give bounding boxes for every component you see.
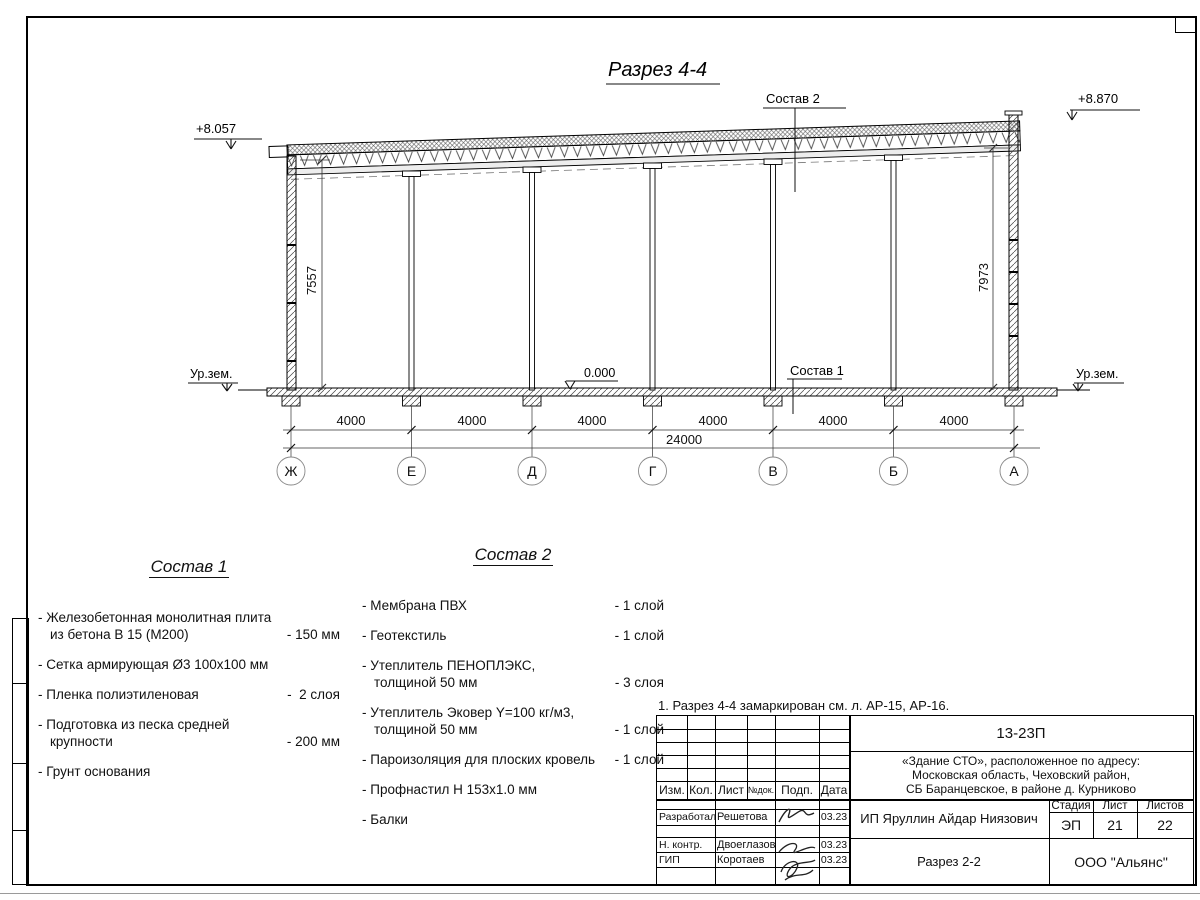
right-parapet-cap — [1005, 111, 1022, 115]
project-code: 13-23П — [849, 716, 1193, 751]
signature-icon — [775, 838, 821, 884]
row-role: ГИП — [659, 852, 715, 867]
axis-label: Е — [407, 463, 416, 479]
item-name: - Пароизоляция для плоских кровель — [362, 751, 615, 768]
column — [530, 173, 535, 391]
legend-item: - Железобетонная монолитная плита из бет… — [38, 609, 340, 643]
composition-2-title: Состав 2 — [362, 546, 664, 563]
doc-name: Разрез 2-2 — [849, 838, 1049, 885]
col-podp: Подп. — [775, 781, 819, 799]
stage-value: ЭП — [1049, 812, 1093, 838]
elevation-zero: 0.000 — [565, 366, 618, 389]
elevation-zero-value: 0.000 — [584, 366, 615, 380]
column-capital — [885, 155, 903, 161]
legend-item: - Подготовка из песка средней крупности … — [38, 716, 340, 750]
col-list: Лист — [715, 781, 747, 799]
item-name: - Утеплитель ПЕНОПЛЭКС, толщиной 50 мм — [362, 657, 615, 691]
drawing-sheet: Разрез 4-4 — [0, 0, 1200, 900]
bay-dim: 4000 — [458, 413, 487, 428]
column-capital — [644, 163, 662, 169]
axis-label: А — [1009, 463, 1019, 479]
columns — [403, 155, 903, 390]
right-wall — [1009, 115, 1018, 390]
elevation-left: +8.057 — [194, 121, 262, 149]
title-block: Изм. Кол. Лист №док. Подп. Дата Разработ… — [656, 715, 1194, 886]
row-role: Разработал — [659, 809, 715, 825]
col-ndok: №док. — [747, 781, 775, 799]
section-drawing: Разрез 4-4 — [0, 0, 1200, 540]
item-qty: - 1 слой — [615, 597, 664, 614]
project-object: «Здание СТО», расположенное по адресу: М… — [849, 751, 1193, 799]
elevation-left-value: +8.057 — [196, 121, 236, 136]
composition-1-title: Состав 1 — [38, 558, 340, 575]
signature-icon — [776, 804, 818, 828]
col-izm: Изм. — [657, 781, 687, 799]
ground-arrow-icon — [222, 383, 232, 391]
bay-dim: 4000 — [940, 413, 969, 428]
sheet-label: Лист — [1093, 799, 1137, 812]
leader-roof-text: Состав 2 — [766, 91, 820, 106]
item-name: - Подготовка из песка средней крупности — [38, 716, 287, 750]
column — [771, 165, 776, 391]
left-wall — [287, 156, 296, 390]
col-data: Дата — [819, 781, 849, 799]
floor-slab — [267, 388, 1057, 396]
total-dimension-line: 24000 — [283, 432, 1040, 452]
footings — [282, 396, 1023, 406]
item-qty: - 1 слой — [615, 627, 664, 644]
bay-dimension-line: 4000 4000 4000 4000 4000 4000 — [283, 413, 1024, 434]
height-dim-left: 7557 — [300, 156, 330, 392]
elevation-arrow-icon — [226, 139, 236, 149]
item-name: - Сетка армирующая Ø3 100х100 мм — [38, 656, 293, 673]
axis-label: Г — [649, 463, 657, 479]
height-dim-right: 7973 — [976, 144, 1008, 392]
height-right-value: 7973 — [976, 263, 991, 292]
column-capital — [523, 167, 541, 173]
legend-item: - Геотекстиль - 1 слой — [362, 627, 664, 644]
leader-floor-text: Состав 1 — [790, 363, 844, 378]
item-name: - Грунт основания — [38, 763, 293, 780]
roof-assembly — [269, 121, 1021, 180]
company-name: ООО "Альянс" — [1049, 838, 1193, 885]
left-margin-boxes — [12, 618, 29, 885]
sheet-value: 21 — [1093, 812, 1137, 838]
composition-1-legend: Состав 1 - Железобетонная монолитная пли… — [38, 558, 340, 793]
margin-divider — [12, 683, 27, 684]
item-name: - Профнастил Н 153х1.0 мм — [362, 781, 624, 798]
row-name: Коротаев — [717, 852, 775, 867]
legend-item: - Мембрана ПВХ - 1 слой — [362, 597, 664, 614]
bay-dim: 4000 — [578, 413, 607, 428]
margin-divider — [12, 830, 27, 831]
ground-right-text: Ур.зем. — [1076, 367, 1118, 381]
item-name: - Балки — [362, 811, 624, 828]
axis-label: В — [768, 463, 777, 479]
ground-label-right: Ур.зем. — [1073, 367, 1124, 391]
roof-edge-cap — [269, 146, 288, 158]
stage-label: Стадия — [1049, 799, 1093, 812]
legend-item: - Грунт основания — [38, 763, 340, 780]
row-date: 03.23 — [819, 837, 849, 852]
designer-name: ИП Яруллин Айдар Ниязович — [849, 799, 1049, 838]
sheet-edge-line — [0, 893, 1200, 894]
legend-item: - Пленка полиэтиленовая - 2 слоя — [38, 686, 340, 703]
row-date: 03.23 — [819, 852, 849, 867]
sheets-value: 22 — [1137, 812, 1193, 838]
item-qty: - 200 мм — [287, 733, 340, 750]
legend-item: - Пароизоляция для плоских кровель - 1 с… — [362, 751, 664, 768]
item-qty: - 150 мм — [287, 626, 340, 643]
legend-item: - Сетка армирующая Ø3 100х100 мм — [38, 656, 340, 673]
column — [409, 177, 414, 391]
bay-dim: 4000 — [699, 413, 728, 428]
axis-label: Ж — [285, 463, 298, 479]
item-qty: - 3 слоя — [615, 674, 664, 691]
column — [650, 169, 655, 391]
height-left-value: 7557 — [304, 266, 319, 295]
legend-item: - Балки — [362, 811, 664, 828]
item-name: - Мембрана ПВХ — [362, 597, 615, 614]
drawing-note: 1. Разрез 4-4 замаркирован см. л. АР-15,… — [658, 698, 949, 713]
column-capital — [403, 171, 421, 177]
extension-lines — [291, 406, 1014, 457]
column — [891, 161, 896, 391]
bay-dim: 4000 — [819, 413, 848, 428]
ground-left-text: Ур.зем. — [190, 367, 232, 381]
item-name: - Утеплитель Эковер Y=100 кг/м3, толщино… — [362, 704, 615, 738]
row-role: Н. контр. — [659, 837, 715, 852]
margin-divider — [12, 763, 27, 764]
item-qty: - 2 слоя — [287, 686, 340, 703]
axis-bubbles: Ж Е Д Г В Б А — [277, 457, 1028, 485]
elevation-right-value: +8.870 — [1078, 91, 1118, 106]
row-name: Решетова — [717, 809, 775, 825]
ground-label-left: Ур.зем. — [188, 367, 238, 391]
legend-item: - Утеплитель ПЕНОПЛЭКС, толщиной 50 мм -… — [362, 657, 664, 691]
bay-dim: 4000 — [337, 413, 366, 428]
elevation-right: +8.870 — [1067, 91, 1140, 120]
column-capital — [764, 159, 782, 165]
composition-2-legend: Состав 2 - Мембрана ПВХ - 1 слой - Геоте… — [362, 546, 664, 841]
drawing-title: Разрез 4-4 — [608, 59, 707, 81]
row-date: 03.23 — [819, 809, 849, 825]
axis-label: Б — [889, 463, 898, 479]
elevation-arrow-icon — [1067, 110, 1077, 120]
item-name: - Железобетонная монолитная плита из бет… — [38, 609, 287, 643]
axis-label: Д — [527, 463, 537, 479]
legend-item: - Профнастил Н 153х1.0 мм — [362, 781, 664, 798]
item-name: - Геотекстиль — [362, 627, 615, 644]
legend-item: - Утеплитель Эковер Y=100 кг/м3, толщино… — [362, 704, 664, 738]
row-name: Двоеглазов — [717, 837, 775, 852]
total-dim: 24000 — [666, 432, 702, 447]
sheets-label: Листов — [1137, 799, 1193, 812]
col-kol: Кол. — [687, 781, 715, 799]
item-name: - Пленка полиэтиленовая — [38, 686, 287, 703]
